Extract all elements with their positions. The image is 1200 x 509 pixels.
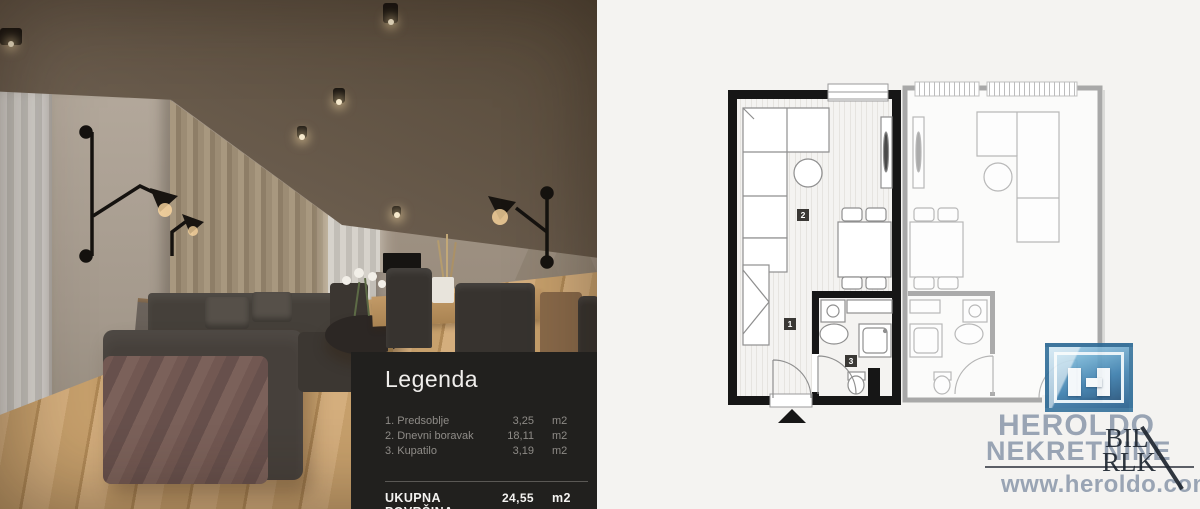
legend-row: 1. Predsoblje 3,25 m2 <box>385 414 586 429</box>
heroldo-logo-icon <box>1045 343 1133 412</box>
listing-composite: Legenda 1. Predsoblje 3,25 m2 2. Dnevni … <box>0 0 1200 509</box>
entrance-arrow-icon <box>778 409 806 423</box>
bath-counter <box>847 300 892 313</box>
tv <box>884 132 889 172</box>
room-unit: m2 <box>552 444 586 459</box>
total-area: 24,55 <box>488 491 534 509</box>
coffee-table <box>794 159 822 187</box>
total-label: UKUPNA POVRŠINA <box>385 491 488 509</box>
room-unit: m2 <box>552 429 586 444</box>
legend-title: Legenda <box>385 366 586 393</box>
room-unit: m2 <box>552 414 586 429</box>
dining-table <box>838 222 891 277</box>
legend-panel: Legenda 1. Predsoblje 3,25 m2 2. Dnevni … <box>351 352 600 509</box>
entrance-opening <box>770 394 812 407</box>
room-area: 18,11 <box>488 429 534 444</box>
legend-divider <box>385 481 588 482</box>
window <box>828 84 888 101</box>
chair <box>866 208 886 221</box>
left-wall-lamp <box>81 127 188 261</box>
room-name: 2. Dnevni boravak <box>385 429 488 444</box>
room-area: 3,19 <box>488 444 534 459</box>
hallway-label: 1 <box>788 319 793 329</box>
brand-divider <box>985 466 1194 468</box>
bathroom-label: 3 <box>849 356 854 366</box>
legend-row: 2. Dnevni boravak 18,11 m2 <box>385 429 586 444</box>
wardrobe <box>743 265 769 345</box>
lamp-glow <box>188 226 198 236</box>
chair <box>866 277 886 289</box>
bathroom <box>812 291 892 396</box>
watermark-text-line2: RLK <box>1102 450 1156 475</box>
room-area: 3,25 <box>488 414 534 429</box>
chair <box>842 208 862 221</box>
sink <box>820 324 848 344</box>
legend-total-row: UKUPNA POVRŠINA 24,55 m2 <box>385 491 586 509</box>
lamp-glow <box>492 209 508 225</box>
interior-photo: Legenda 1. Predsoblje 3,25 m2 2. Dnevni … <box>0 0 600 509</box>
lamp-glow <box>158 203 172 217</box>
chair <box>842 277 862 289</box>
living-room-label: 2 <box>801 210 806 220</box>
logo-gloss <box>1049 347 1129 408</box>
room-name: 3. Kupatilo <box>385 444 488 459</box>
floor-plan-panel: 2 1 3 HEROLDO NEKRETNINE www.heroldo.com… <box>597 0 1200 509</box>
legend-row: 3. Kupatilo 3,19 m2 <box>385 444 586 459</box>
room-name: 1. Predsoblje <box>385 414 488 429</box>
highlighted-unit: 2 1 3 <box>728 84 901 423</box>
right-wall-lamp <box>516 188 552 267</box>
total-unit: m2 <box>552 491 586 509</box>
